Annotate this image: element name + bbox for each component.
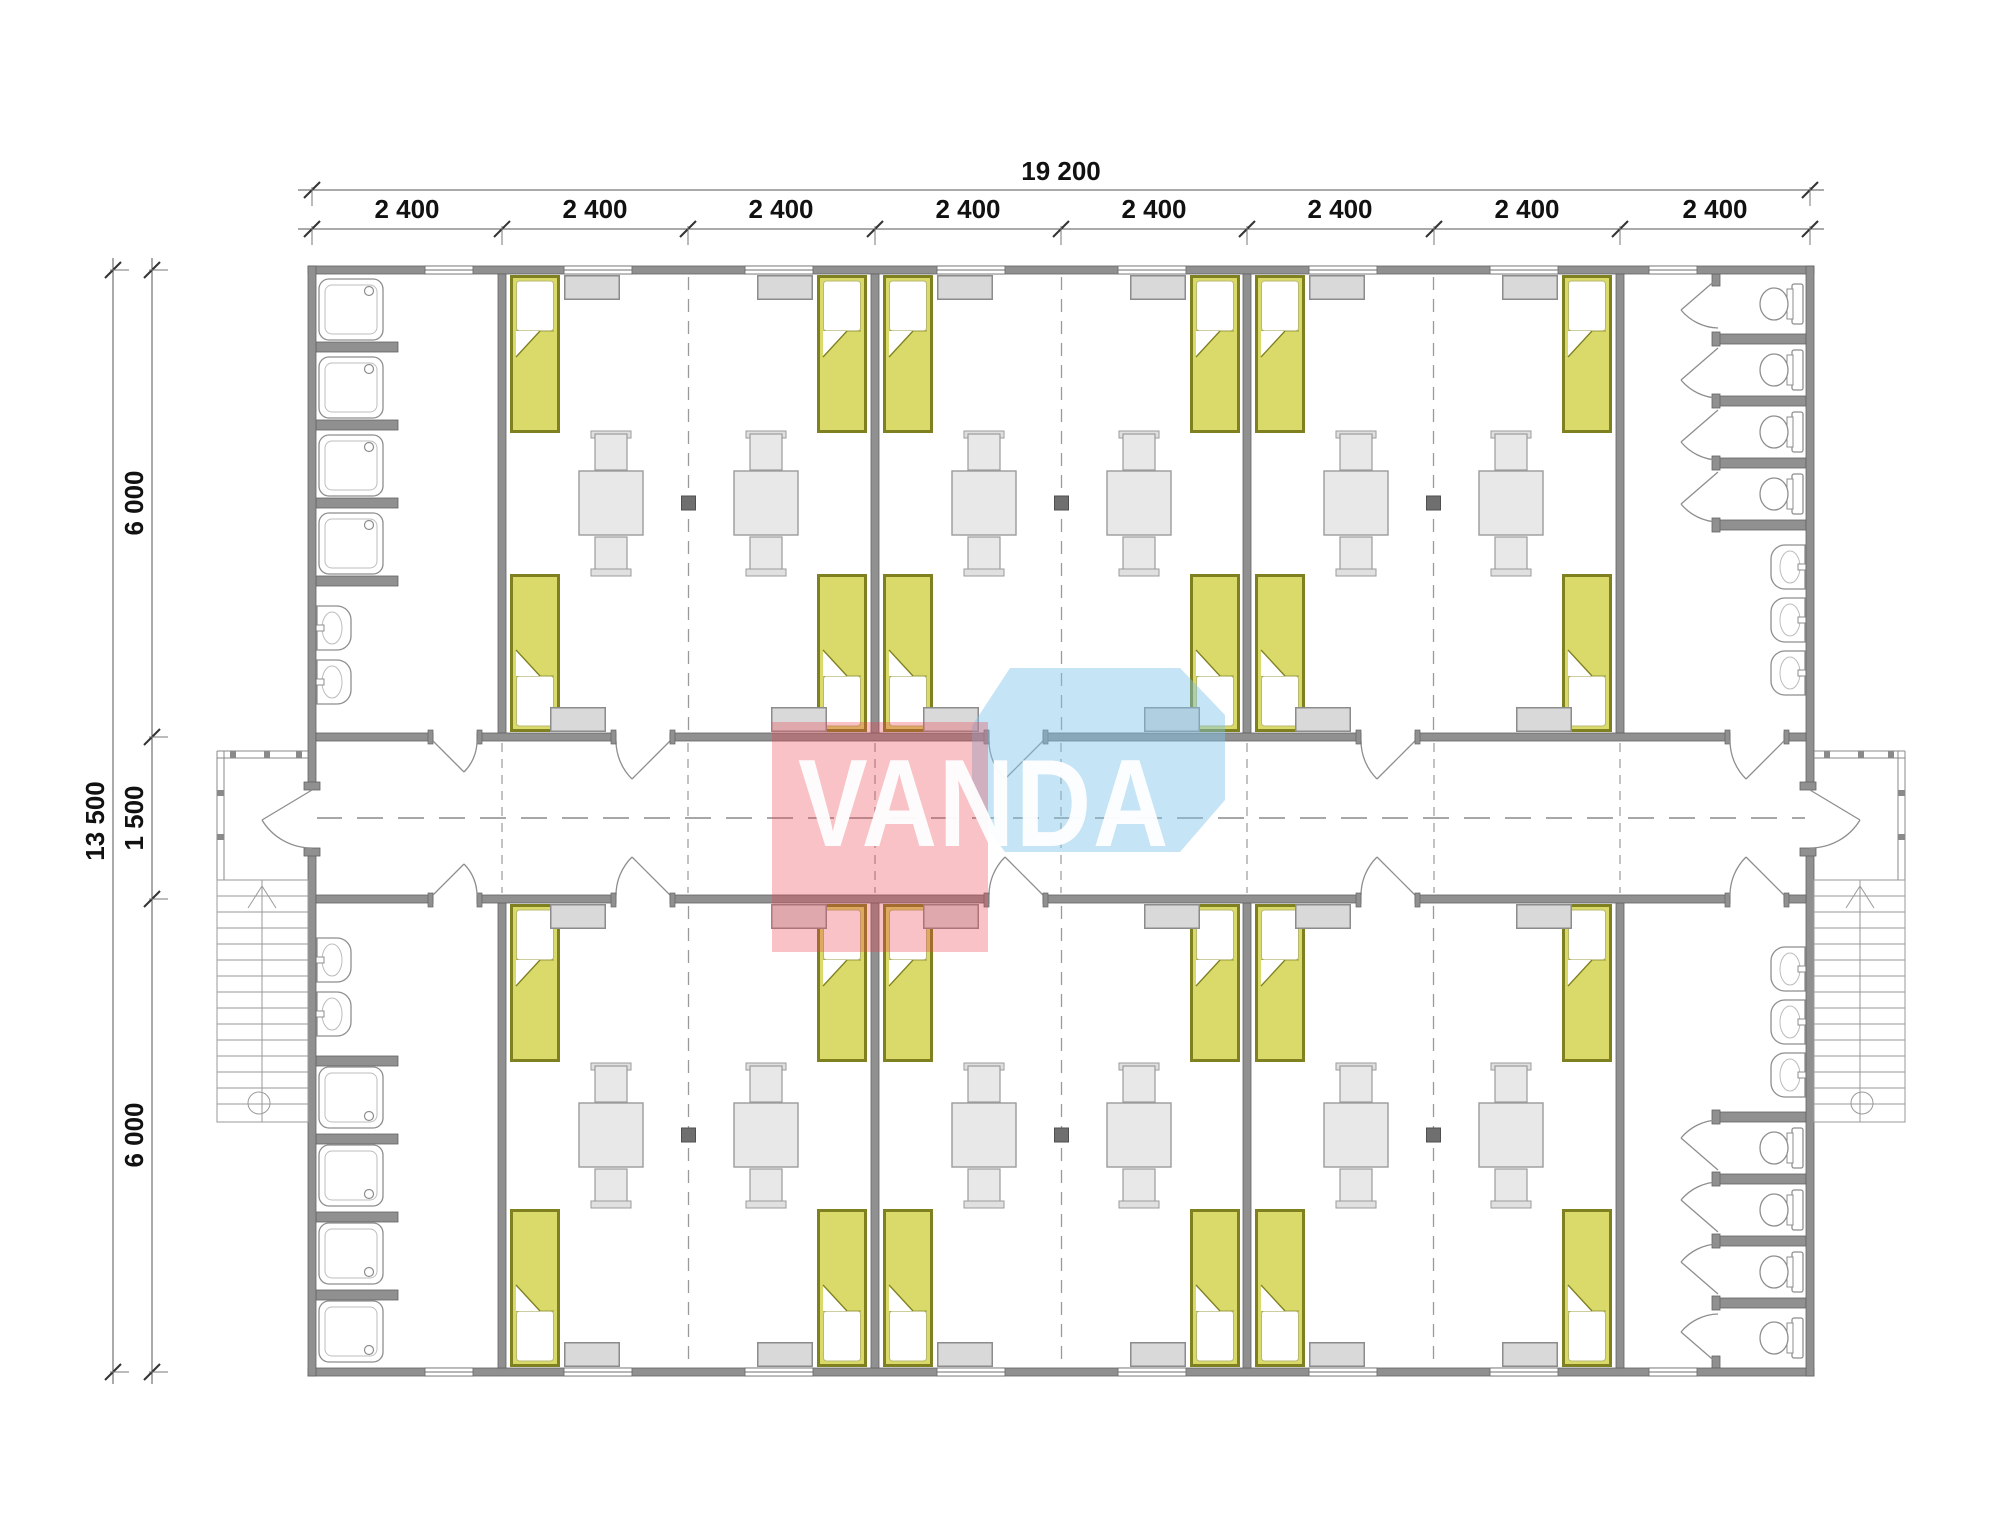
window xyxy=(1649,266,1697,274)
window xyxy=(564,1368,632,1376)
toilet xyxy=(1760,1252,1803,1292)
shower-tray xyxy=(319,357,383,418)
dim-segment: 2 400 xyxy=(1121,194,1186,224)
dorm-room xyxy=(1257,276,1611,779)
dim-height-segment: 1 500 xyxy=(119,785,149,850)
window xyxy=(745,266,813,274)
sink xyxy=(316,660,351,704)
dorm-room xyxy=(1257,857,1611,1366)
dim-segment: 2 400 xyxy=(1307,194,1372,224)
exterior-wall-top xyxy=(308,266,1814,274)
stairs-right xyxy=(1814,880,1905,1122)
dim-segment: 2 400 xyxy=(748,194,813,224)
shower-tray xyxy=(319,1067,383,1128)
dim-total-width: 19 200 xyxy=(1021,156,1101,186)
stairs-left xyxy=(217,880,308,1122)
window xyxy=(1490,266,1558,274)
window xyxy=(564,266,632,274)
entrance-door-left xyxy=(262,782,320,856)
dorm-room xyxy=(512,276,866,779)
logo-text: VANDA xyxy=(798,735,1170,873)
porch-right xyxy=(1814,751,1905,880)
toilet xyxy=(1760,1128,1803,1168)
shower-tray xyxy=(319,435,383,496)
sink xyxy=(316,606,351,650)
entrance-door-right xyxy=(1800,782,1860,856)
window xyxy=(937,266,1005,274)
window xyxy=(1118,1368,1186,1376)
dim-segment: 2 400 xyxy=(562,194,627,224)
window xyxy=(1309,266,1377,274)
floor-plan-drawing: VANDA 19 200 2 400 2 400 2 400 2 400 2 4… xyxy=(0,0,2000,1539)
dim-height-segment: 6 000 xyxy=(119,1102,149,1167)
sink xyxy=(1771,1053,1806,1097)
window xyxy=(1309,1368,1377,1376)
toilet xyxy=(1760,284,1803,324)
toilet xyxy=(1760,474,1803,514)
shower-tray xyxy=(319,1145,383,1206)
toilet-room-top-right xyxy=(1681,274,1806,695)
window xyxy=(1118,266,1186,274)
sink xyxy=(1771,947,1806,991)
dorm-rooms-lower xyxy=(512,857,1611,1366)
window xyxy=(1649,1368,1697,1376)
toilet xyxy=(1760,1318,1803,1358)
sink xyxy=(316,992,351,1036)
sink xyxy=(1771,545,1806,589)
dim-height-segment: 6 000 xyxy=(119,470,149,535)
shower-tray xyxy=(319,279,383,340)
window xyxy=(745,1368,813,1376)
exterior-wall-bottom xyxy=(308,1368,1814,1376)
porch-left xyxy=(217,751,308,880)
shower-room-bottom-left xyxy=(316,938,398,1362)
dim-total-height: 13 500 xyxy=(80,781,110,861)
sink xyxy=(316,938,351,982)
shower-room-top-left xyxy=(316,279,398,704)
dimension-left-segments: 6 000 1 500 6 000 xyxy=(119,258,168,1384)
dimension-top-segments: 2 400 2 400 2 400 2 400 2 400 2 400 2 40… xyxy=(298,194,1824,245)
dim-segment: 2 400 xyxy=(1494,194,1559,224)
dim-segment: 2 400 xyxy=(374,194,439,224)
toilet-room-bottom-right xyxy=(1681,947,1806,1368)
dim-segment: 2 400 xyxy=(935,194,1000,224)
toilet xyxy=(1760,412,1803,452)
shower-tray xyxy=(319,1301,383,1362)
floor-plan-sheet: VANDA 19 200 2 400 2 400 2 400 2 400 2 4… xyxy=(0,0,2000,1539)
window xyxy=(1490,1368,1558,1376)
shower-tray xyxy=(319,1223,383,1284)
sink xyxy=(1771,598,1806,642)
window xyxy=(937,1368,1005,1376)
window xyxy=(425,266,473,274)
sink xyxy=(1771,651,1806,695)
toilet xyxy=(1760,1190,1803,1230)
dimension-top-total: 19 200 xyxy=(298,156,1824,206)
toilet xyxy=(1760,350,1803,390)
shower-tray xyxy=(319,513,383,574)
sink xyxy=(1771,1000,1806,1044)
window xyxy=(425,1368,473,1376)
dim-segment: 2 400 xyxy=(1682,194,1747,224)
